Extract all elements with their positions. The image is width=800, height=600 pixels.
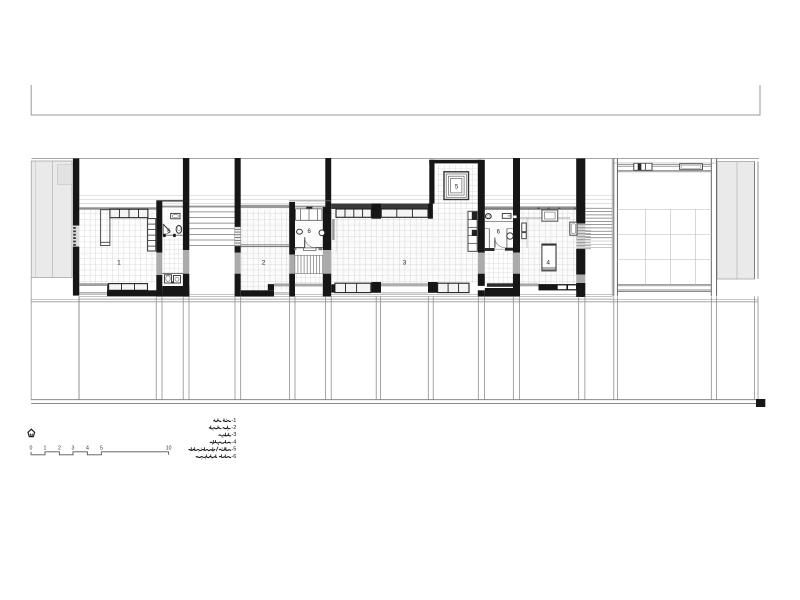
svg-text:-2: -2 <box>231 425 236 431</box>
svg-text:3: 3 <box>72 445 75 451</box>
svg-text:1: 1 <box>117 260 121 267</box>
svg-text:5: 5 <box>100 445 103 451</box>
svg-text:-4: -4 <box>231 439 236 445</box>
svg-text:4: 4 <box>546 260 550 267</box>
svg-text:-6: -6 <box>231 454 236 460</box>
svg-text:10: 10 <box>166 445 172 451</box>
svg-text:4: 4 <box>86 445 89 451</box>
svg-text:2: 2 <box>58 445 61 451</box>
svg-text:3: 3 <box>403 260 407 267</box>
svg-text:-3: -3 <box>231 432 236 438</box>
svg-text:-1: -1 <box>231 418 236 424</box>
svg-text:1: 1 <box>44 445 47 451</box>
svg-text:2: 2 <box>262 260 266 267</box>
svg-text:-5: -5 <box>231 447 236 453</box>
svg-text:0: 0 <box>30 445 33 451</box>
